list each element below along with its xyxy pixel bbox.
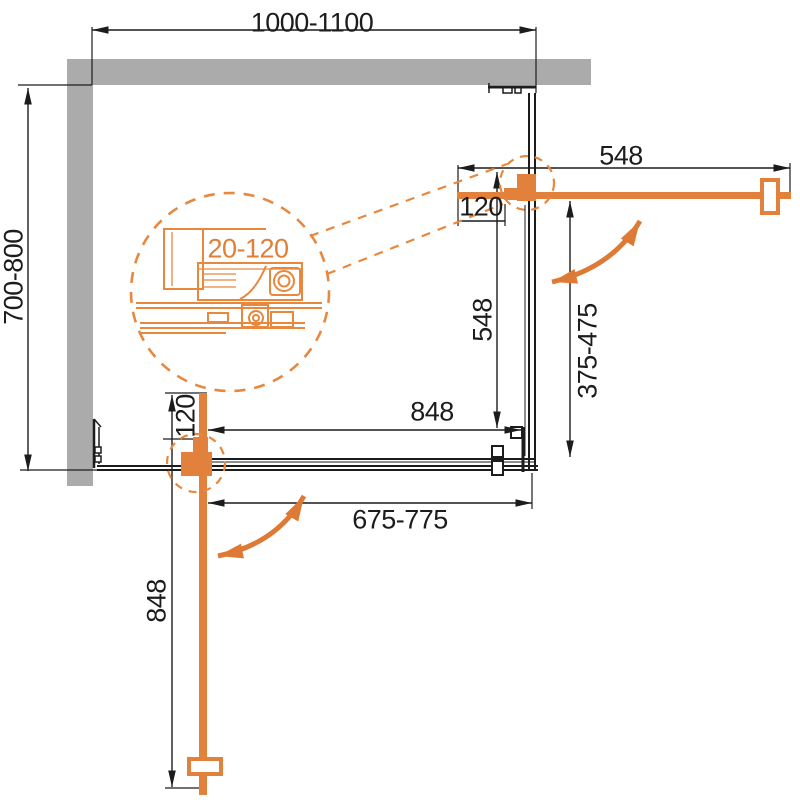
frame-black (94, 83, 538, 475)
side-door-swing-arrow-icon (552, 221, 640, 282)
dim-label-bottom-door-width: 848 (144, 579, 171, 623)
extension-lines (18, 27, 790, 788)
dim-label-top-door-width: 548 (599, 143, 643, 170)
shower-enclosure-plan: 1000-1100 700-800 548 120 548 375-475 84… (0, 0, 800, 800)
dim-label-bottom-wall-clearance: 120 (173, 394, 200, 438)
bottom-pivot-block (181, 437, 212, 476)
front-door-handle-icon (189, 759, 221, 774)
dimension-lines (18, 27, 790, 788)
dim-label-front-fixed-panel: 848 (410, 399, 454, 426)
dim-label-profile-adjustment-range: 20-120 (207, 236, 288, 263)
dim-label-side-entry-range: 375-475 (575, 303, 602, 399)
glass-clamps (95, 427, 522, 475)
dim-label-side-fixed-panel: 548 (470, 298, 497, 342)
front-door-swing-arrow-icon (218, 496, 304, 556)
dim-label-top-wall-clearance: 120 (459, 194, 503, 221)
dim-label-depth-range: 700-800 (1, 229, 28, 325)
side-door-handle-icon (762, 180, 778, 213)
wall-top (67, 59, 591, 85)
wall-left (67, 59, 93, 486)
dim-label-front-entry-range: 675-775 (352, 507, 448, 534)
dim-label-width-range: 1000-1100 (251, 10, 374, 37)
top-pivot-block (504, 174, 536, 201)
plan-drawing-svg (0, 0, 800, 800)
